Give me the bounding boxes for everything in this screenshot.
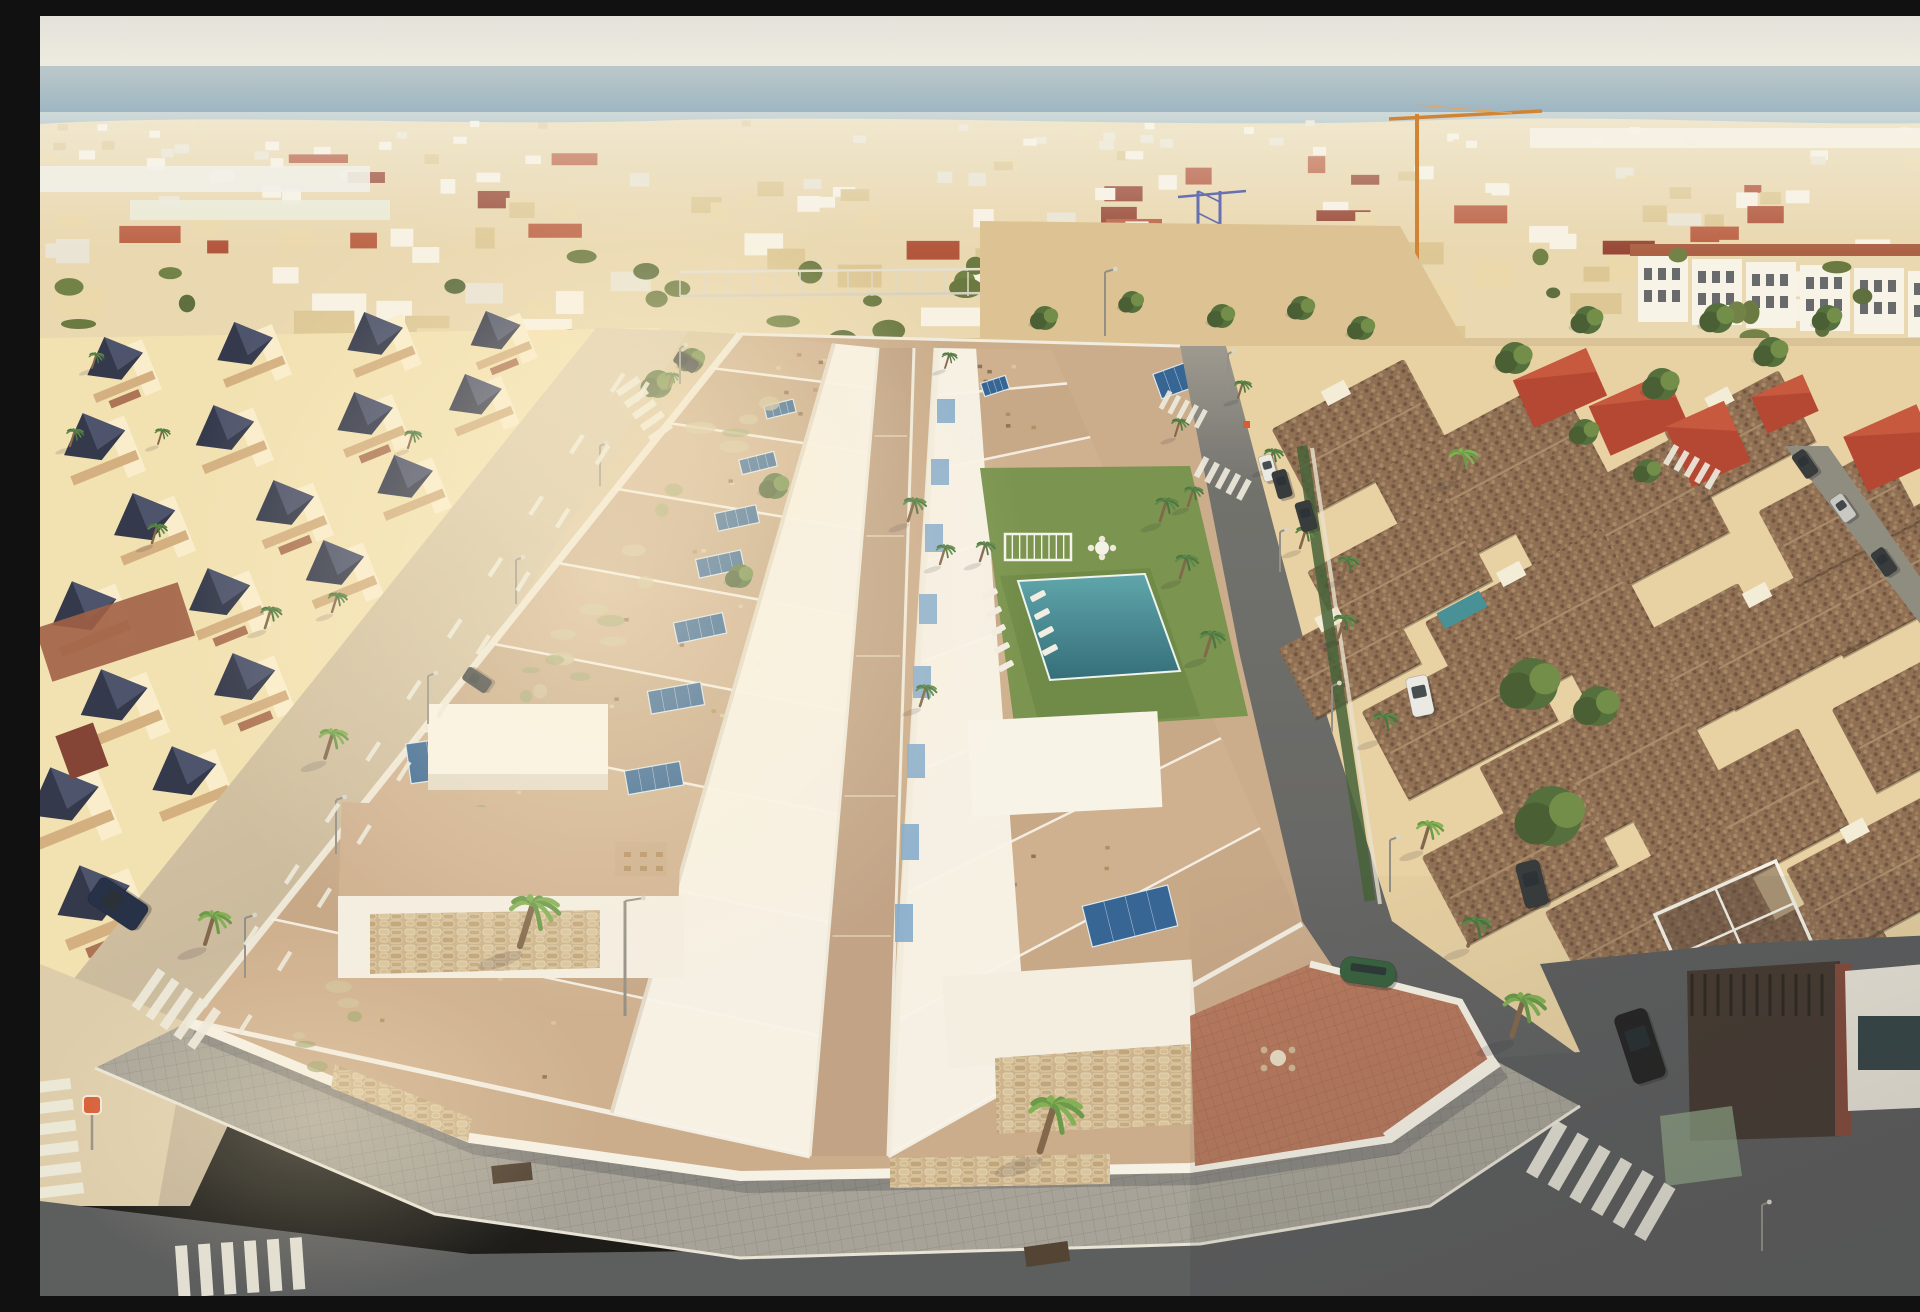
warm-tint (40, 16, 1920, 1296)
aerial-photo-scene (40, 16, 1920, 1296)
aerial-photograph (40, 16, 1920, 1296)
